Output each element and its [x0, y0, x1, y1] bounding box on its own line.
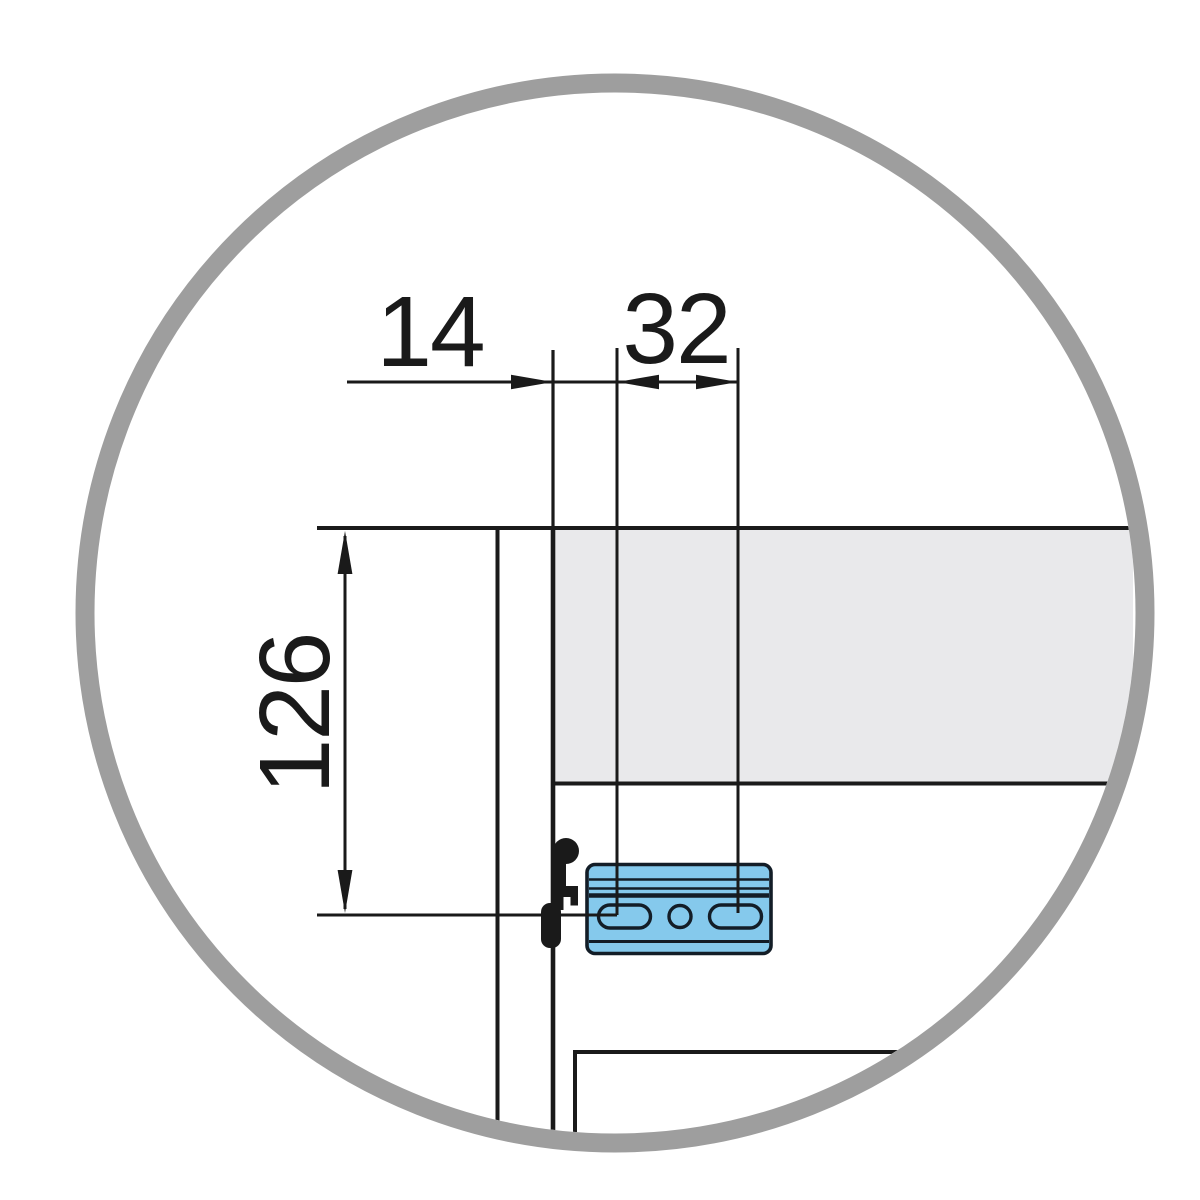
arrow-up-126: [338, 531, 353, 574]
detail-circle-content: 14 32 126: [239, 273, 1133, 1150]
detail-diagram: 14 32 126: [0, 0, 1200, 1200]
plate-center-hole: [669, 906, 691, 928]
detail-drawing-page: 14 32 126: [0, 0, 1200, 1200]
dimension-label-32: 32: [622, 273, 729, 385]
mounting-plate: [587, 865, 771, 954]
shelf-panel-fill: [555, 530, 1133, 782]
dimension-label-14: 14: [376, 276, 483, 388]
hanger-hook: [541, 838, 579, 948]
plate-slot-right: [710, 905, 762, 928]
hook-lower-lobe: [541, 903, 561, 948]
arrow-down-126: [338, 870, 353, 913]
dimension-label-126: 126: [239, 634, 351, 795]
hook-neck: [551, 846, 566, 890]
arrow-right-14: [511, 375, 553, 389]
